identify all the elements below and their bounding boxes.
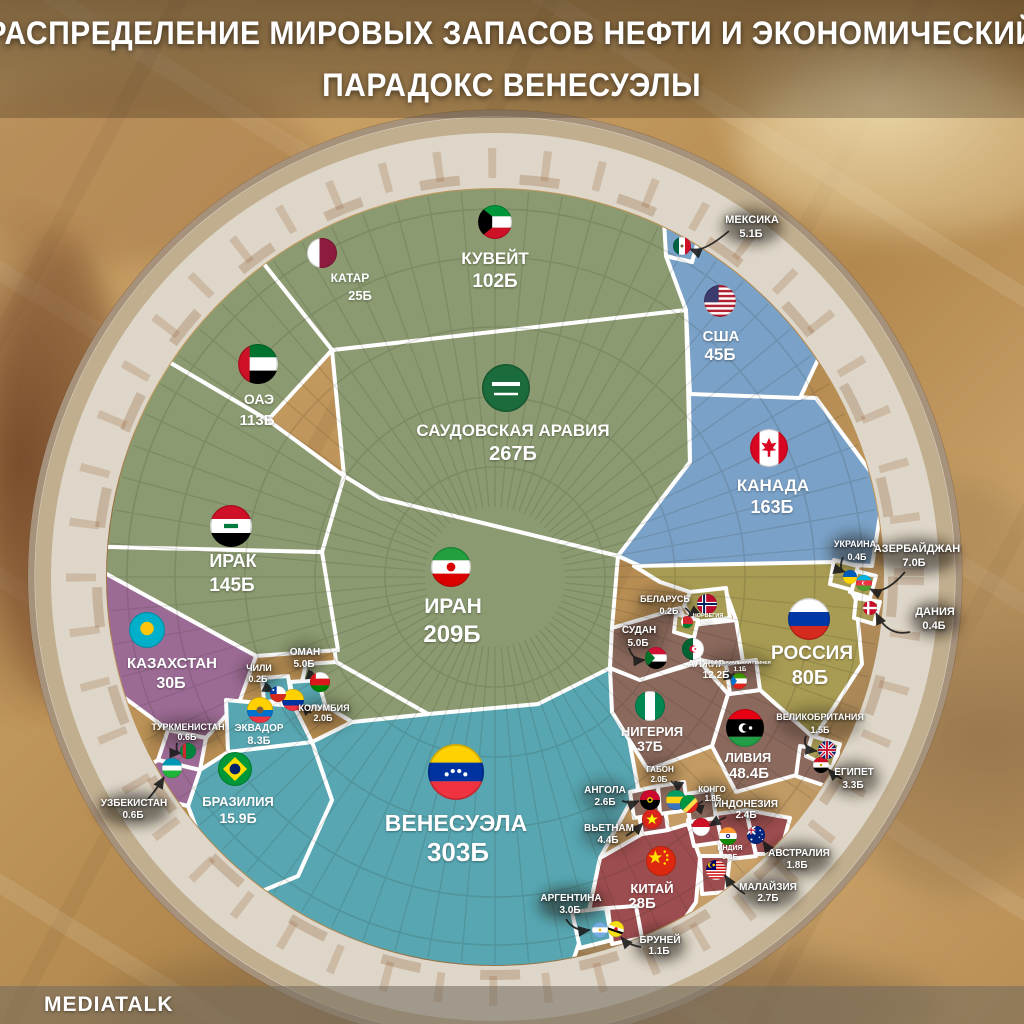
nigeria-value: 37Б: [637, 738, 663, 754]
title-bar: РАСПРЕДЕЛЕНИЕ МИРОВЫХ ЗАПАСОВ НЕФТИ И ЭК…: [0, 0, 1024, 118]
ukraine-value: 0.4Б: [848, 552, 868, 562]
chile-value: 0.2Б: [249, 674, 269, 684]
egypt-value: 3.3Б: [842, 780, 863, 791]
kazakhstan-flag-icon: [129, 612, 165, 648]
uk-value: 1.5Б: [811, 725, 831, 735]
libya-label: ЛИВИЯ: [725, 750, 772, 765]
canada-label: КАНАДА: [737, 476, 809, 495]
iran-flag-icon: [431, 547, 471, 587]
chile-flag-icon: [270, 686, 286, 702]
indonesia-label: ИНДОНЕЗИЯ: [714, 799, 778, 810]
brazil-flag-icon: [218, 752, 252, 786]
gabon-value: 2.0Б: [651, 775, 668, 784]
norway-label: НОРВЕГИЯ: [693, 613, 724, 619]
iran-value: 209Б: [423, 621, 480, 648]
mexico-flag-icon: [673, 237, 691, 255]
malaysia-flag-icon: [706, 860, 726, 880]
congo-label: КОНГО: [698, 785, 726, 794]
iraq-value: 145Б: [209, 575, 254, 596]
ukraine-label: УКРАИНА: [834, 539, 877, 549]
argentina-value: 3.0Б: [559, 905, 580, 916]
egypt-label: ЕГИПЕТ: [834, 767, 874, 778]
turkmenistan-value: 0.6Б: [178, 732, 198, 742]
malaysia-label: МАЛАЙЗИЯ: [739, 880, 797, 893]
venezuela-value: 303Б: [427, 837, 489, 867]
turkmenistan-label: ТУРКМЕНИСТАН: [151, 722, 224, 732]
azerbaijan-value: 7.0Б: [902, 557, 925, 569]
nigeria-label: НИГЕРИЯ: [621, 724, 683, 739]
uae-value: 113Б: [240, 412, 275, 429]
russia-flag-icon: [788, 598, 830, 640]
canada-flag-icon: [750, 429, 788, 467]
norway-value: 6.9Б: [701, 620, 714, 626]
title-line-1: РАСПРЕДЕЛЕНИЕ МИРОВЫХ ЗАПАСОВ НЕФТИ И ЭК…: [0, 15, 1024, 52]
qatar-label: КАТАР: [331, 271, 370, 285]
brunei-value: 1.1Б: [648, 946, 669, 957]
oman-label: ОМАН: [290, 647, 321, 658]
angola-flag-icon: [640, 790, 660, 810]
mediatalk-logo: MEDIATALK: [44, 993, 174, 1017]
azerbaijan-flag-icon: [856, 575, 872, 591]
usa-label: США: [703, 328, 740, 345]
angola-label: АНГОЛА: [584, 785, 626, 796]
congo-value: 1.8Б: [705, 794, 722, 803]
brunei-label: БРУНЕЙ: [639, 933, 680, 946]
saudi_arabia-value: 267Б: [489, 443, 537, 465]
usa-value: 45Б: [704, 345, 735, 364]
kuwait-label: КУВЕЙТ: [461, 249, 529, 268]
australia-label: АВСТРАЛИЯ: [768, 848, 830, 859]
kuwait-flag-icon: [478, 205, 512, 239]
sudan-value: 5.0Б: [627, 638, 648, 649]
vietnam-label: ВЬЕТНАМ: [584, 823, 634, 834]
turkmenistan-flag-icon: [180, 743, 196, 759]
china-value: 28Б: [628, 895, 656, 912]
indonesia-flag-icon: [692, 818, 710, 836]
china-flag-icon: [646, 846, 676, 876]
belarus-flag-icon: [681, 616, 693, 628]
uk-flag-icon: [818, 741, 836, 759]
canada-value: 163Б: [751, 497, 794, 517]
malaysia-value: 2.7Б: [757, 893, 778, 904]
ecuador-label: ЭКВАДОР: [234, 723, 283, 734]
gabon-label: ГАБОН: [646, 765, 674, 774]
ukraine-flag-icon: [843, 570, 857, 584]
saudi-arabia-flag-icon: [482, 364, 530, 412]
argentina-label: АРГЕНТИНА: [540, 893, 601, 904]
eq_guinea-value: 1.1Б: [734, 667, 747, 673]
angola-value: 2.6Б: [594, 797, 615, 808]
indonesia-value: 2.4Б: [735, 810, 756, 821]
algeria-flag-icon: [682, 638, 704, 660]
chile-label: ЧИЛИ: [246, 663, 272, 673]
india-flag-icon: [719, 827, 737, 845]
qatar-value: 25Б: [348, 288, 372, 303]
eq_guinea-label: ЭКВАТОРИАЛЬНАЯ ГВИНЕЯ: [707, 660, 771, 665]
qatar-flag-icon: [307, 238, 337, 268]
mexico-label: МЕКСИКА: [725, 214, 779, 226]
brazil-label: БРАЗИЛИЯ: [202, 794, 274, 809]
uzbekistan-flag-icon: [162, 758, 182, 778]
infographic-stage: ВЕНЕСУЭЛА303БСАУДОВСКАЯ АРАВИЯ267БИРАН20…: [0, 0, 1024, 1024]
egypt-flag-icon: [813, 757, 829, 773]
libya-flag-icon: [726, 709, 764, 747]
belarus-value: 0.2Б: [660, 606, 680, 616]
title-line-2: ПАРАДОКС ВЕНЕСУЭЛЫ: [323, 67, 702, 104]
denmark-flag-icon: [863, 601, 877, 615]
oman-flag-icon: [310, 672, 330, 692]
brunei-flag-icon: [608, 921, 624, 937]
norway-flag-icon: [697, 594, 717, 614]
equatorial-guinea-flag-icon: [731, 673, 747, 689]
denmark-label: ДАНИЯ: [915, 606, 955, 618]
footer-bar: MEDIATALK: [0, 986, 1024, 1024]
vietnam-flag-icon: [642, 809, 662, 829]
russia-value: 80Б: [792, 667, 829, 689]
venezuela-label: ВЕНЕСУЭЛА: [385, 810, 527, 836]
iran-label: ИРАН: [424, 595, 482, 618]
india-label: ИНДИЯ: [717, 845, 742, 852]
congo-flag-icon: [680, 795, 698, 813]
china-label: КИТАЙ: [630, 881, 673, 896]
colombia-value: 2.0Б: [314, 713, 334, 723]
saudi_arabia-label: САУДОВСКАЯ АРАВИЯ: [416, 421, 609, 440]
uk-label: ВЕЛИКОБРИТАНИЯ: [776, 712, 864, 722]
brazil-value: 15.9Б: [219, 810, 256, 826]
australia-flag-icon: [747, 826, 765, 844]
libya-value: 48.4Б: [729, 765, 769, 782]
uzbekistan-label: УЗБЕКИСТАН: [101, 798, 168, 809]
australia-value: 1.8Б: [786, 860, 807, 871]
iraq-label: ИРАК: [209, 551, 257, 571]
ecuador-value: 8.3Б: [247, 735, 270, 747]
argentina-flag-icon: [592, 922, 608, 938]
belarus-label: БЕЛАРУСЬ: [640, 594, 690, 604]
russia-label: РОССИЯ: [771, 643, 853, 664]
azerbaijan-label: АЗЕРБАЙДЖАН: [874, 542, 961, 555]
kuwait-value: 102Б: [472, 271, 517, 292]
usa-flag-icon: [704, 285, 736, 317]
nigeria-flag-icon: [635, 691, 665, 721]
kazakhstan-label: КАЗАХСТАН: [127, 655, 217, 672]
kazakhstan-value: 30Б: [156, 675, 185, 692]
colombia-label: КОЛУМБИЯ: [298, 703, 349, 713]
uae-flag-icon: [238, 344, 278, 384]
denmark-value: 0.4Б: [922, 620, 945, 632]
mexico-value: 5.1Б: [739, 228, 762, 240]
uae-label: ОАЭ: [244, 391, 274, 407]
algeria-value: 12.2Б: [703, 670, 730, 681]
sudan-label: СУДАН: [622, 625, 656, 636]
vietnam-value: 4.4Б: [597, 835, 618, 846]
ecuador-flag-icon: [247, 697, 273, 723]
uzbekistan-value: 0.6Б: [122, 810, 143, 821]
iraq-flag-icon: [210, 505, 252, 547]
oil-reserves-voronoi-chart: ВЕНЕСУЭЛА303БСАУДОВСКАЯ АРАВИЯ267БИРАН20…: [0, 0, 1024, 1024]
oman-value: 5.0Б: [293, 659, 314, 670]
venezuela-flag-icon: [428, 744, 484, 800]
sudan-flag-icon: [645, 647, 667, 669]
india-value: 5.0Б: [722, 852, 738, 861]
